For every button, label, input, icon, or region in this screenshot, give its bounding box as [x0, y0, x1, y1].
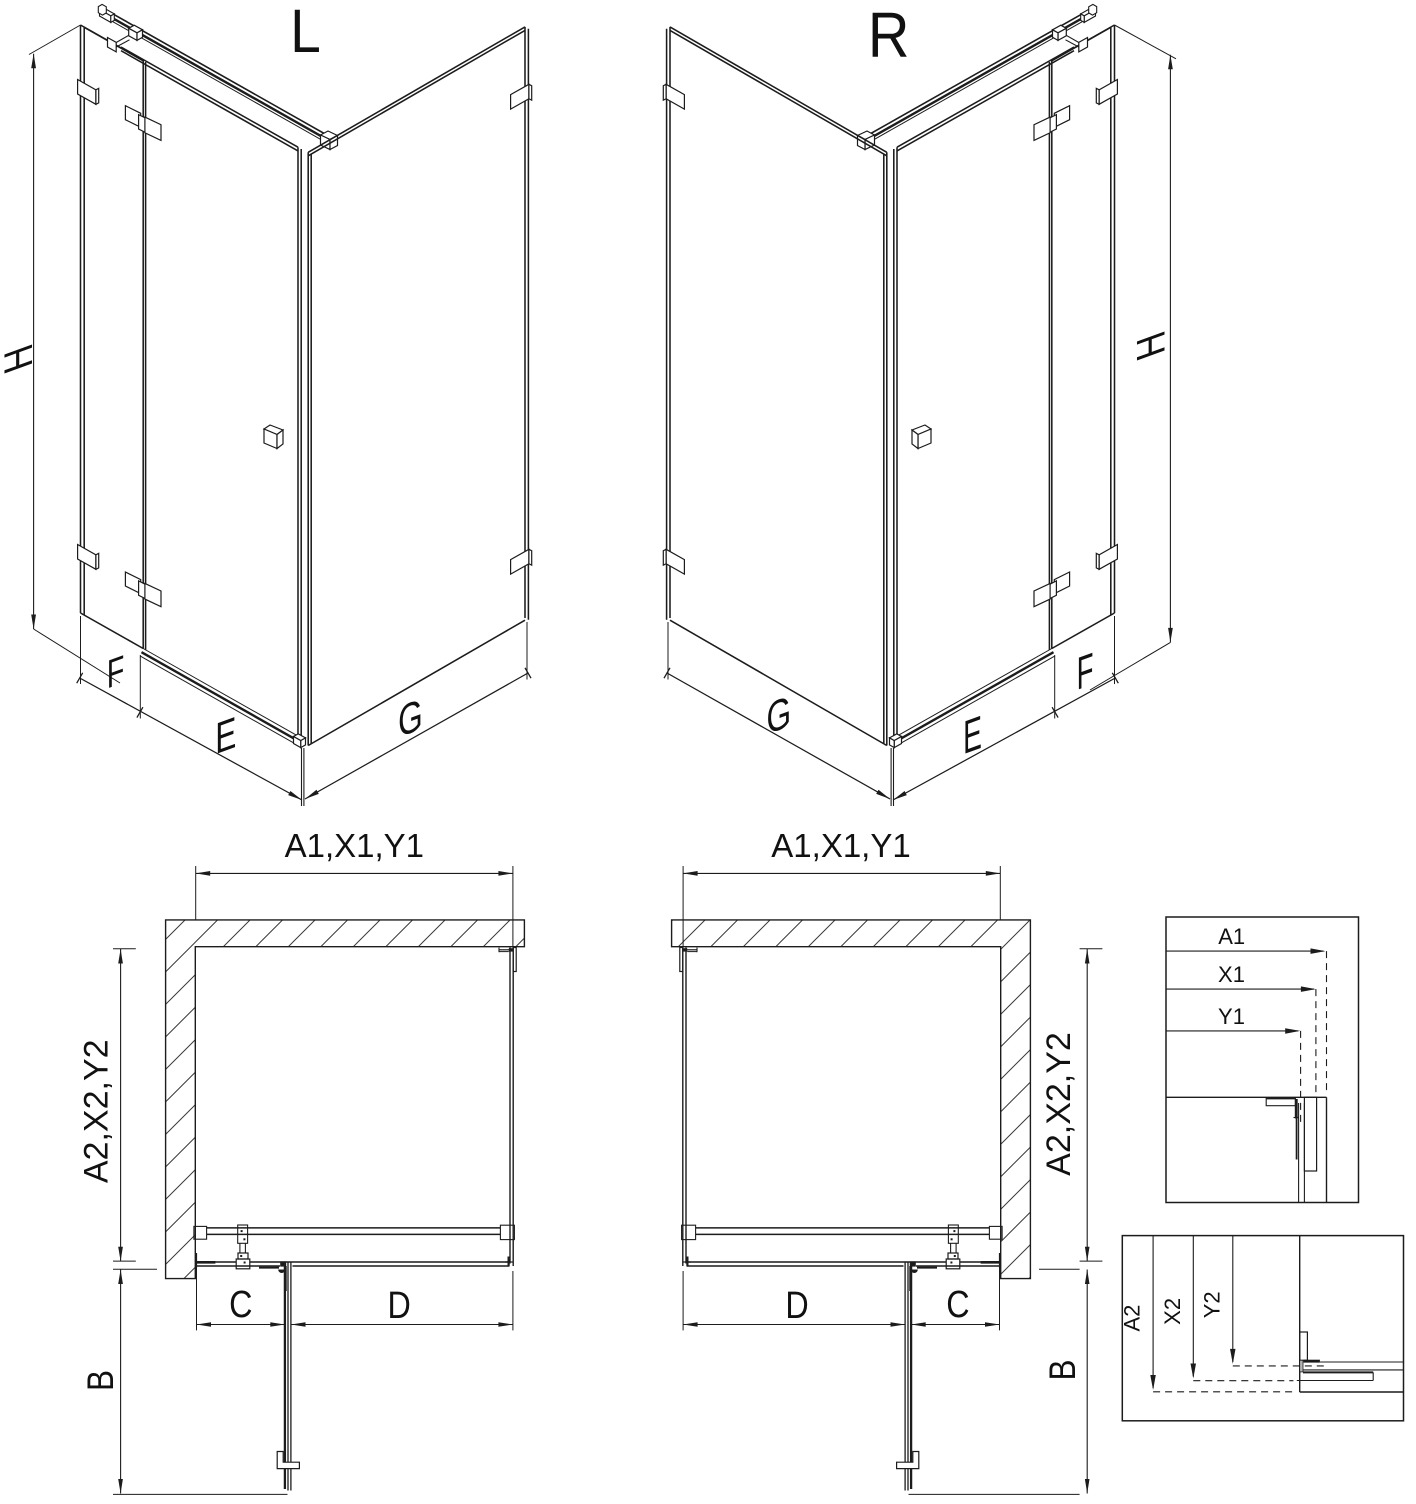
svg-text:Y1: Y1	[1218, 1004, 1245, 1029]
svg-text:R: R	[868, 0, 910, 71]
svg-text:X1: X1	[1218, 962, 1245, 987]
svg-text:G: G	[398, 690, 423, 747]
svg-text:A2: A2	[1120, 1305, 1145, 1332]
svg-text:F: F	[107, 646, 125, 697]
svg-text:B: B	[81, 1370, 122, 1391]
svg-text:G: G	[766, 687, 791, 744]
svg-text:A2,X2,Y2: A2,X2,Y2	[78, 1039, 116, 1183]
svg-text:A1,X1,Y1: A1,X1,Y1	[285, 827, 424, 864]
svg-text:A1,X1,Y1: A1,X1,Y1	[771, 827, 910, 864]
svg-text:D: D	[785, 1285, 808, 1327]
svg-text:Y2: Y2	[1199, 1291, 1224, 1318]
svg-text:C: C	[946, 1284, 969, 1326]
svg-text:A2,X2,Y2: A2,X2,Y2	[1040, 1032, 1078, 1176]
svg-text:C: C	[229, 1284, 252, 1326]
svg-text:X2: X2	[1160, 1298, 1185, 1325]
svg-text:E: E	[215, 708, 236, 764]
svg-text:A1: A1	[1218, 924, 1245, 949]
svg-text:E: E	[963, 706, 982, 765]
svg-text:L: L	[290, 0, 321, 66]
svg-text:B: B	[1043, 1360, 1084, 1381]
svg-text:F: F	[1077, 643, 1094, 700]
svg-text:D: D	[388, 1285, 411, 1327]
